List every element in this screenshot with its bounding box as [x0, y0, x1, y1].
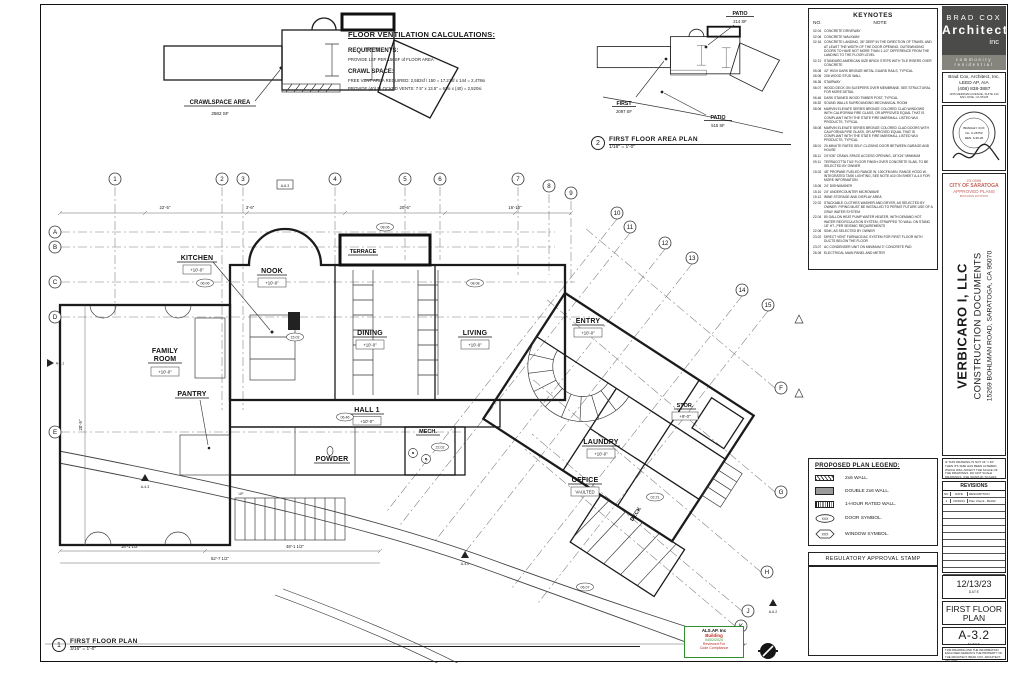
svg-text:LIVING: LIVING: [463, 330, 488, 337]
keynote-number: 08.01: [813, 144, 824, 153]
keynote-text: MARVIN ELEVATE SERIES BRONZE COLORED CLA…: [824, 107, 933, 124]
room-label-dining: DINING +10'-0": [353, 330, 387, 349]
north-arrow-icon: [758, 643, 778, 659]
architect-contact: Brad Cox, Architect, Inc. LEED AP, AIA (…: [942, 72, 1006, 103]
keynote-text: 24" DISHWASHER: [824, 184, 933, 188]
vent-calc-line1: FREE VENT AREA REQUIRED: 2,582sf / 150 =…: [348, 78, 563, 83]
keynotes-col-no: NO.: [813, 21, 827, 26]
keynote-number: 22.02: [813, 201, 824, 214]
powder-partitions: [295, 427, 355, 475]
kitchen-band-walls: [230, 229, 565, 400]
double-wall-symbol: [815, 487, 845, 495]
svg-text:9: 9: [569, 190, 573, 197]
svg-text:06.06: 06.06: [201, 281, 210, 285]
svg-text:22.02: 22.02: [436, 445, 445, 449]
keynotes-list: 02.04 CONCRETE DRIVEWAY 02.06 CONCRETE W…: [813, 29, 933, 255]
revision-delta-icons: [795, 315, 803, 397]
ventilation-calculations: FLOOR VENTILATION CALCULATIONS: REQUIREM…: [348, 30, 563, 94]
keynote-text: WOOD DECK ON SLEEPERS OVER MEMBRANE, SEE…: [824, 86, 933, 95]
room-label-stor: STOR. +9'-0": [672, 403, 698, 420]
keynote-text: ELECTRICAL MAIN PANEL AND METER: [824, 251, 933, 255]
water-heater: [409, 449, 431, 464]
keynote-number: 02.06: [813, 35, 824, 39]
keynote-number: 23.02: [813, 235, 824, 244]
svg-text:12: 12: [662, 240, 669, 247]
svg-text:+9'-0": +9'-0": [679, 414, 691, 419]
deck-walls: [570, 495, 684, 596]
svg-text:A-4.0: A-4.0: [461, 562, 470, 566]
architect-seal: BRADLEY COX No. C-26753 REN. 6-30-25: [942, 105, 1006, 171]
architect-logo: BRAD COX Architect inc community residen…: [942, 6, 1006, 70]
svg-text:LAUNDRY: LAUNDRY: [583, 439, 618, 446]
keynote-number: 08.11: [813, 154, 824, 158]
keynote-row: 02.06 CONCRETE WALKWAY: [813, 35, 933, 39]
revisions-title: REVISIONS: [943, 482, 1005, 491]
keynote-number: 08.08: [813, 126, 824, 143]
svg-text:16'-10": 16'-10": [508, 205, 522, 210]
powder-fixture: [327, 447, 333, 456]
svg-text:A-6.2: A-6.2: [769, 610, 778, 614]
grid-lines-diagonal-numbers: [387, 219, 768, 603]
patio-top-area: 214 SF: [733, 19, 747, 24]
svg-text:H: H: [765, 569, 769, 576]
keynote-text: DIRECT VENT FURNACE/AC SYSTEM FOR FIRST …: [824, 235, 933, 244]
document-type: CONSTRUCTION DOCUMENTS: [973, 188, 984, 464]
client-name: VERBICARO I, LLC: [955, 188, 970, 464]
legend-title: PROPOSED PLAN LEGEND:: [815, 463, 931, 469]
svg-text:3'-6": 3'-6": [246, 205, 255, 210]
keynote-text: 48" PROPANE FUELED RANGE W. 100CFM MIN. …: [824, 170, 933, 183]
area-plan-title: FIRST FLOOR AREA PLAN: [609, 136, 791, 145]
project-address: 15269 BOHLMAN ROAD, SARATOGA, CA 95070: [987, 188, 994, 464]
copyright-note: THIS DRAWING AND THE INFORMATION ENCLOSE…: [942, 647, 1006, 660]
svg-text:E: E: [53, 429, 57, 436]
keynote-number: 08.06: [813, 107, 824, 124]
keynote-row: 23.07 AC CONDENSER UNIT ON MINIMUM 3" CO…: [813, 245, 933, 249]
keynote-row: 02.21 STANDARD AMERICAN SIZE BRICK STEPS…: [813, 59, 933, 68]
keynote-row: 22.02 STACKABLE CLOTHES WASHER AND DRYER…: [813, 201, 933, 214]
first-area: 2097 SF: [616, 109, 632, 114]
keynote-text: TERRACOTTA TILE FLOOR FINISH OVER CONCRE…: [824, 160, 933, 169]
svg-text:20'-6": 20'-6": [400, 205, 411, 210]
room-label-terrace: TERRACE: [348, 249, 378, 255]
sheet-number-box: A-3.2 SHEET: [942, 627, 1006, 645]
svg-text:ROOM: ROOM: [154, 356, 177, 363]
keynote-row: 02.04 CONCRETE DRIVEWAY: [813, 29, 933, 33]
keynote-text: 24"X36" CRAWL SPACE ACCESS OPENING, 18"X…: [824, 154, 933, 158]
svg-text:08.06: 08.06: [381, 225, 390, 229]
room-label-nook: NOOK +10'-0": [257, 268, 287, 287]
svg-text:XXX: XXX: [822, 533, 830, 537]
svg-text:15.02: 15.02: [291, 335, 300, 339]
vent-req-line: PROVIDE 1SF PER 150SF of FLOOR AREA: [348, 57, 563, 62]
svg-text:BRADLEY COX: BRADLEY COX: [963, 126, 984, 130]
keynote-row: 15.10 24" UNDERCOUNTER MICROWAVE: [813, 190, 933, 194]
svg-text:FAMILY: FAMILY: [152, 348, 178, 355]
area-mini-plan: PATIO 214 SF FIRST 2097 SF PATIO 515 SF: [588, 5, 803, 137]
code-compliance-stamp: ALS.AP. Inc Building 04/02/2024 Reviewed…: [684, 626, 744, 658]
logo-tagline: community residential: [942, 55, 1006, 70]
pantry-walls: [180, 435, 230, 475]
stor-walls: [692, 398, 743, 449]
legend-item-door: XXX DOOR SYMBOL.: [815, 514, 931, 523]
keynotes-panel: KEYNOTES NO. NOTE 02.04 CONCRETE DRIVEWA…: [808, 8, 938, 270]
svg-text:+10'-0": +10'-0": [363, 343, 377, 348]
keynote-row: 08.01 20-MINUTE RATED SELF-CLOSING DOOR …: [813, 144, 933, 153]
sheet-date: 12/13/23: [943, 579, 1005, 589]
keynote-row: 22.06 SINK, AS SELECTED BY OWNER: [813, 229, 933, 233]
area-plan-number: 2: [591, 136, 605, 150]
keynote-number: 02.21: [813, 59, 824, 68]
keynote-number: 22.04: [813, 215, 824, 228]
first-floor-plan-drawing: UP 22'-5" 3'-6" 20'-6" 16'-10" 16'-1 1/2…: [45, 165, 807, 663]
keynote-row: 02.16 CONCRETE LANDING, 36" DEEP IN THE …: [813, 40, 933, 57]
revisions-header-row: NO. DATE DESCRIPTION: [943, 491, 1005, 498]
svg-text:UP: UP: [239, 492, 245, 496]
keynote-row: 06.46 DARK STAINED WOOD TIMBER POST, TYP…: [813, 96, 933, 100]
svg-text:08.08: 08.08: [471, 281, 480, 285]
svg-text:STOR.: STOR.: [677, 403, 694, 409]
svg-text:G: G: [779, 489, 784, 496]
revisions-table: REVISIONS NO. DATE DESCRIPTION 1 03/30/2…: [942, 481, 1006, 573]
room-label-mech: MECH.: [416, 429, 440, 435]
keynote-row: 15.02 48" PROPANE FUELED RANGE W. 100CFM…: [813, 170, 933, 183]
svg-text:+10'-0": +10'-0": [265, 281, 279, 286]
svg-text:20'-5": 20'-5": [78, 419, 83, 430]
svg-text:13: 13: [689, 255, 696, 262]
svg-text:52'-7 1/2": 52'-7 1/2": [211, 556, 230, 561]
keynote-number: 02.04: [813, 29, 824, 33]
svg-text:22'-5": 22'-5": [160, 205, 171, 210]
keynote-row: 26.05 ELECTRICAL MAIN PANEL AND METER: [813, 251, 933, 255]
svg-text:DINING: DINING: [357, 330, 383, 337]
keynote-number: 26.05: [813, 251, 824, 255]
sheet-title: FIRST FLOOR PLAN: [942, 601, 1006, 625]
room-label-living: LIVING +10'-0": [458, 330, 492, 349]
keynote-number: 06.36: [813, 80, 824, 84]
vent-title: FLOOR VENTILATION CALCULATIONS:: [348, 30, 563, 39]
area-plan-scale: 1/16" = 1'-0": [609, 145, 791, 150]
keynote-text: SOUND WALLS SURROUNDING MECHANICAL ROOM: [824, 101, 933, 105]
revision-row: 1 03/30/24 Plan Check - BL002: [943, 498, 1005, 505]
svg-text:F: F: [779, 385, 783, 392]
project-title: VERBICARO I, LLC CONSTRUCTION DOCUMENTS …: [955, 188, 994, 464]
grid-lines-vertical: [115, 187, 571, 410]
keynote-number: 23.07: [813, 245, 824, 249]
keynote-text: 42" HIGH DARK BRONZE METAL GUARD RAILS, …: [824, 69, 933, 73]
svg-text:B: B: [53, 244, 57, 251]
vent-calc-line2: PROVIDE (40) BLOCKED VENTS: 7.5" x 13.5"…: [348, 86, 563, 91]
keynote-number: 09.11: [813, 160, 824, 169]
svg-text:D: D: [53, 314, 58, 321]
keynote-row: 06.07 WOOD DECK ON SLEEPERS OVER MEMBRAN…: [813, 86, 933, 95]
patio-bottom-area: 515 SF: [711, 123, 725, 128]
main-plan-scale: 3/16" = 1'-0": [70, 647, 642, 652]
svg-text:+10'-0": +10'-0": [190, 268, 204, 273]
svg-text:10: 10: [614, 210, 621, 217]
legend-item-double-wall: DOUBLE 2x6 WALL.: [815, 487, 931, 495]
svg-text:4: 4: [333, 176, 337, 183]
keynote-row: 06.06 2X6 WOOD STUD WALL: [813, 74, 933, 78]
keynote-row: 22.04 80 GALLON HEAT PUMP WATER HEATER, …: [813, 215, 933, 228]
legend-item-wall: 2x6 WALL.: [815, 475, 931, 481]
room-label-powder: POWDER: [314, 456, 350, 463]
keynote-text: 2X6 WOOD STUD WALL: [824, 74, 933, 78]
svg-text:J: J: [746, 608, 749, 615]
svg-text:14: 14: [739, 287, 746, 294]
room-label-family: FAMILY ROOM +10'-0": [148, 348, 182, 376]
legend-item-rated-wall: 1-HOUR RATED WALL.: [815, 501, 931, 508]
svg-text:HALL 1: HALL 1: [354, 407, 380, 414]
keynote-row: 09.11 TERRACOTTA TILE FLOOR FINISH OVER …: [813, 160, 933, 169]
exterior-stair: UP: [235, 492, 345, 540]
regulatory-stamp-header: REGULATORY APPROVAL STAMP: [808, 552, 938, 566]
keynote-row: 15.06 24" DISHWASHER: [813, 184, 933, 188]
svg-text:+10'-0": +10'-0": [360, 419, 374, 424]
svg-text:No. C-26753: No. C-26753: [965, 131, 982, 135]
kitchen-cabinet: [195, 318, 225, 378]
svg-text:C: C: [53, 279, 58, 286]
svg-text:11: 11: [627, 224, 634, 231]
keynote-row: 08.11 24"X36" CRAWL SPACE ACCESS OPENING…: [813, 154, 933, 158]
legend-item-window: XXX WINDOW SYMBOL.: [815, 529, 931, 539]
keynote-number: 05.08: [813, 69, 824, 73]
svg-text:7: 7: [516, 176, 520, 183]
svg-text:+10'-0": +10'-0": [594, 452, 608, 457]
svg-text:REN. 6-30-25: REN. 6-30-25: [965, 136, 984, 140]
keynote-text: SINK, AS SELECTED BY OWNER: [824, 229, 933, 233]
main-plan-title: FIRST FLOOR PLAN: [70, 638, 640, 647]
keynote-text: DARK STAINED WOOD TIMBER POST, TYPICAL: [824, 96, 933, 100]
project-info-box: 23-0556 CITY OF SARATOGA APPROVED PLANS …: [942, 173, 1006, 456]
svg-text:3: 3: [241, 176, 245, 183]
svg-text:1: 1: [113, 176, 117, 183]
svg-text:KITCHEN: KITCHEN: [181, 255, 214, 262]
keynote-text: STANDARD AMERICAN SIZE BRICK STEPS WITH …: [824, 59, 933, 68]
keynote-row: 06.52 SOUND WALLS SURROUNDING MECHANICAL…: [813, 101, 933, 105]
svg-text:2: 2: [220, 176, 224, 183]
svg-text:TERRACE: TERRACE: [350, 249, 377, 255]
area-plan-caption: 2 FIRST FLOOR AREA PLAN 1/16" = 1'-0": [591, 136, 791, 150]
svg-text:A-4.3: A-4.3: [141, 485, 150, 489]
grid-bubbles-diagonal: 10 11 12 13 14 15: [611, 207, 774, 311]
svg-text:+10'-0": +10'-0": [158, 370, 172, 375]
keynote-number: 06.06: [813, 74, 824, 78]
svg-text:A-6.3: A-6.3: [281, 184, 290, 188]
dimensions: 22'-5" 3'-6" 20'-6" 16'-10" 16'-1 1/2" 4…: [58, 205, 573, 563]
svg-text:5: 5: [403, 176, 407, 183]
keynotes-col-note: NOTE: [827, 21, 933, 26]
rated-wall-symbol: [815, 501, 845, 508]
keynote-text: 24" UNDERCOUNTER MICROWAVE: [824, 190, 933, 194]
svg-text:NOOK: NOOK: [261, 268, 283, 275]
scale-disclaimer: IF THIS DRAWING IS NOT 24" x 36" THEN IT…: [942, 458, 1006, 479]
legend-panel: PROPOSED PLAN LEGEND: 2x6 WALL. DOUBLE 2…: [808, 458, 938, 546]
keynote-text: STAIRWAY: [824, 80, 933, 84]
keynote-number: 06.52: [813, 101, 824, 105]
date-box: 12/13/23 DATE: [942, 575, 1006, 599]
keynote-row: 23.02 DIRECT VENT FURNACE/AC SYSTEM FOR …: [813, 235, 933, 244]
grid-lines-horizontal: [61, 232, 590, 432]
door-symbol-icon: XXX: [815, 514, 845, 523]
keynote-text: CONCRETE WALKWAY: [824, 35, 933, 39]
svg-text:A-6.1: A-6.1: [56, 362, 65, 366]
sheet-number: A-3.2: [943, 628, 1005, 642]
crawlspace-label: CRAWLSPACE AREA: [190, 100, 251, 106]
window-symbol-icon: XXX: [815, 529, 845, 539]
keynote-text: 80 GALLON HEAT PUMP WATER HEATER, WITH D…: [824, 215, 933, 228]
door-swing-arcs: [85, 305, 191, 545]
svg-text:+10'-0": +10'-0": [581, 331, 595, 336]
svg-text:OFFICE: OFFICE: [572, 477, 599, 484]
drawing-sheet: CRAWLSPACE AREA 2582 SF FLOOR VENTILATIO…: [0, 0, 1024, 675]
svg-text:MECH.: MECH.: [419, 429, 437, 435]
leader-dot: [280, 67, 283, 70]
svg-text:6: 6: [438, 176, 442, 183]
main-plan-number: 1: [52, 638, 66, 652]
svg-text:02.21: 02.21: [651, 495, 660, 499]
keynote-number: 15.10: [813, 190, 824, 194]
keynote-number: 15.12: [813, 195, 824, 199]
svg-text:VAULTED: VAULTED: [575, 490, 594, 495]
wall-2x6-symbol: [815, 475, 845, 481]
room-label-entry: ENTRY +10'-0": [572, 318, 604, 337]
main-plan-caption: 1 FIRST FLOOR PLAN 3/16" = 1'-0": [52, 638, 642, 652]
vent-req-heading: REQUIREMENTS:: [348, 48, 563, 54]
keynote-row: 05.08 42" HIGH DARK BRONZE METAL GUARD R…: [813, 69, 933, 73]
keynote-text: AC CONDENSER UNIT ON MINIMUM 3" CONCRETE…: [824, 245, 933, 249]
keynote-row: 15.12 WINE STORAGE AND DISPLAY AREA: [813, 195, 933, 199]
keynote-text: CONCRETE LANDING, 36" DEEP IN THE DIRECT…: [824, 40, 933, 57]
keynote-number: 15.06: [813, 184, 824, 188]
svg-text:POWDER: POWDER: [316, 456, 349, 463]
grid-bubbles-top: 1 2 3 4 5 6 7 8 9: [109, 173, 577, 199]
svg-text:ENTRY: ENTRY: [576, 318, 601, 325]
keynote-row: 06.36 STAIRWAY: [813, 80, 933, 84]
signature: [953, 144, 999, 160]
keynote-number: 02.16: [813, 40, 824, 57]
keynote-number: 06.46: [813, 96, 824, 100]
crawlspace-area: 2582 SF: [211, 111, 229, 116]
keynote-row: 08.06 MARVIN ELEVATE SERIES BRONZE COLOR…: [813, 107, 933, 124]
fireplace: [288, 312, 300, 330]
keynote-text: STACKABLE CLOTHES WASHER AND DRYER, AS S…: [824, 201, 933, 214]
keynote-text: CONCRETE DRIVEWAY: [824, 29, 933, 33]
keynote-text: 20-MINUTE RATED SELF-CLOSING DOOR BETWEE…: [824, 144, 933, 153]
room-label-office: OFFICE VAULTED: [568, 477, 602, 496]
svg-text:06.07: 06.07: [581, 585, 590, 589]
keynote-number: 06.07: [813, 86, 824, 95]
svg-text:48'-1 1/2": 48'-1 1/2": [286, 544, 305, 549]
svg-text:8: 8: [547, 183, 551, 190]
vent-crawl-heading: CRAWL SPACE:: [348, 69, 563, 75]
keynotes-header: NO. NOTE: [813, 21, 933, 26]
keynote-number: 22.06: [813, 229, 824, 233]
svg-text:16'-1 1/2": 16'-1 1/2": [121, 544, 140, 549]
svg-text:XXX: XXX: [822, 517, 830, 521]
keynote-text: MARVIN ELEVATE SERIES BRONZE COLORED CLA…: [824, 126, 933, 143]
site-wall-curve-2: [59, 463, 725, 657]
svg-text:06.46: 06.46: [341, 415, 350, 419]
keynote-number: 15.02: [813, 170, 824, 183]
keynotes-title: KEYNOTES: [813, 12, 933, 19]
svg-text:15: 15: [765, 302, 772, 309]
keynote-text: WINE STORAGE AND DISPLAY AREA: [824, 195, 933, 199]
room-label-hall: HALL 1 +10'-0": [350, 407, 384, 425]
keynote-row: 08.08 MARVIN ELEVATE SERIES BRONZE COLOR…: [813, 126, 933, 143]
svg-text:PANTRY: PANTRY: [177, 391, 206, 398]
regulatory-stamp-box: [808, 566, 938, 656]
svg-text:+10'-0": +10'-0": [468, 343, 482, 348]
